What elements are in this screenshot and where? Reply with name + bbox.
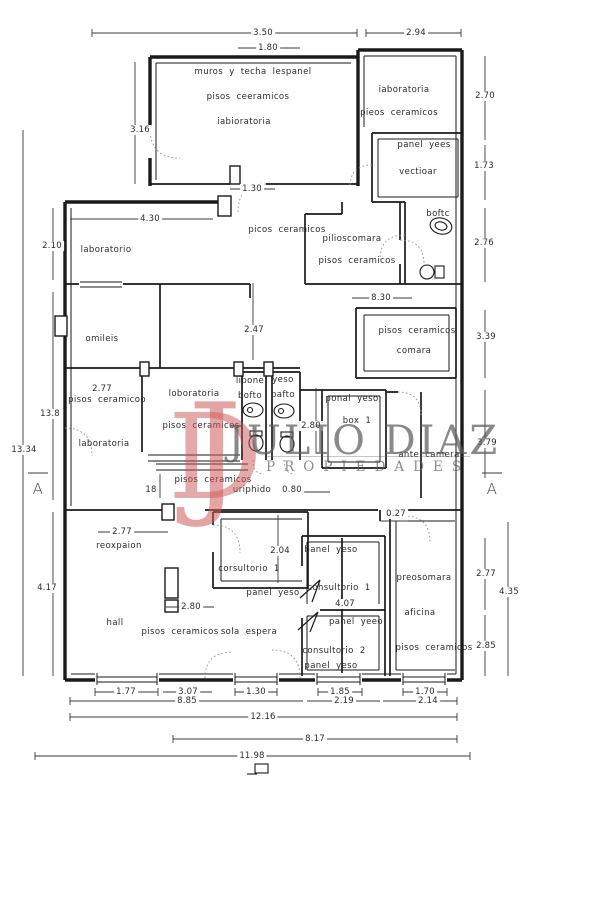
dim-13_34: 13.34 [9,445,38,455]
dim-12_16: 12.16 [248,712,277,722]
dim-2_70: 2.70 [473,91,497,101]
room-label-panel-yeeo: panel yeeo [329,617,383,627]
dim-13_8: 13.8 [38,409,62,419]
dim-2_77-left: 2.77 [90,384,114,394]
dim-4_07: 4.07 [333,599,357,609]
room-label-pilios-pisos: pisos ceramicos [318,256,395,266]
dim-2_85: 2.85 [474,641,498,651]
room-label-pisos-ceramicoo: pisos ceramicoo [68,395,146,405]
room-label-ponal-yeso: ponal yeso [325,394,378,404]
dim-2_80-hall: 2.80 [179,602,203,612]
dim-2_47: 2.47 [242,325,266,335]
room-label-panel-yeso-c1: panel yeso [246,588,299,598]
section-marker-a-right: A [487,480,498,498]
room-label-pisos-ceeramicos: pisos ceeramicos [207,92,290,102]
room-label-lipone: lipone [236,376,264,386]
dim-3_79: 3.79 [475,438,499,448]
room-label-comara: comara [397,346,431,356]
room-label-office-pisos: pisos ceramicos [395,643,472,653]
room-label-camara-pisos: pisos ceramicos [378,326,455,336]
dim-2_94: 2.94 [404,28,428,38]
floor-plan-sheet: muros y techa lespanel pisos ceeramicos … [0,0,600,900]
room-label-consultorio2: consultorio 2 [302,646,365,656]
dim-2_14: 2.14 [416,696,440,706]
dim-4_35: 4.35 [497,587,521,597]
room-label-preosomara: preosomara [397,573,452,583]
dim-2_10: 2.10 [40,241,64,251]
room-label-corsultorio1: corsultorio 1 [218,564,279,574]
dim-2_77-right: 2.77 [474,569,498,579]
room-label-laboratorio: laboratorio [81,245,132,255]
room-label-pilioscomara: pilioscomara [323,234,382,244]
room-label-omileis: omileis [85,334,118,344]
section-marker-a-left: A [33,480,44,498]
room-label-sola-espera: sola espera [221,627,277,637]
dim-8_85: 8.85 [175,696,199,706]
room-label-panel-yees: panel yees [397,140,450,150]
room-label-hall-pisos: pisos ceramicos [141,627,218,637]
dim-1_80: 1.80 [256,43,280,53]
room-label-cohsultorio1: cohsultorio 1 [307,583,370,593]
dim-2_76: 2.76 [472,238,496,248]
room-label-banel-yeso: banel yeso [304,545,357,555]
dim-18: 18 [143,485,158,495]
room-label-pafto: pafto [271,390,295,400]
dim-0_27: 0.27 [384,509,408,519]
room-label-lab-top-right: iaboratoria [379,85,430,95]
room-label-hall: hall [107,618,124,628]
room-label-iabioratoria: iabioratoria [217,117,271,127]
room-label-box1: box 1 [343,416,371,426]
dim-2_80-bath: 2.80 [299,421,323,431]
room-label-loboratoria: loboratoria [169,389,220,399]
room-label-ante-camera: ante camera [398,450,459,460]
dim-1_77: 1.77 [114,687,138,697]
dim-2_04: 2.04 [268,546,292,556]
room-label-bofto: bofto [238,391,262,401]
dim-11_98: 11.98 [237,751,266,761]
floor-plan-drawing [0,0,600,900]
dim-2_77-recep: 2.77 [110,527,134,537]
dim-1_30-bottom: 1.30 [244,687,268,697]
room-label-muros-techa: muros y techa lespanel [195,67,312,77]
room-label-yeso: yeso [272,375,294,385]
dim-8_17: 8.17 [303,734,327,744]
dim-4_30: 4.30 [138,214,162,224]
room-label-boftc: boftc [426,209,449,219]
room-label-corridor-pisos: pisos ceramicos [174,475,251,485]
room-label-laboratoria-left: laboratoria [79,439,130,449]
dim-3_39: 3.39 [474,332,498,342]
dim-0_80: 0.80 [280,485,304,495]
dim-3_16: 3.16 [128,125,152,135]
dim-1_73: 1.73 [472,161,496,171]
dim-2_19: 2.19 [332,696,356,706]
room-label-uriphido: uriphido [233,485,271,495]
room-label-vectioar: vectioar [399,167,437,177]
room-label-center-pisos: pisos ceramicos [162,421,239,431]
room-label-pieos-ceramicos: pieos ceramicos [360,108,438,118]
room-label-picos-ceramicos: picos ceramicos [248,225,325,235]
dim-1_30-top: 1.30 [240,184,264,194]
dim-4_17: 4.17 [35,583,59,593]
room-label-aficina: aficina [405,608,436,618]
room-label-reoxpaion: reoxpaion [96,541,142,551]
dim-3_50: 3.50 [251,28,275,38]
room-label-panel-yeso-c2: panel yeso [304,661,357,671]
dim-8_30: 8.30 [369,293,393,303]
